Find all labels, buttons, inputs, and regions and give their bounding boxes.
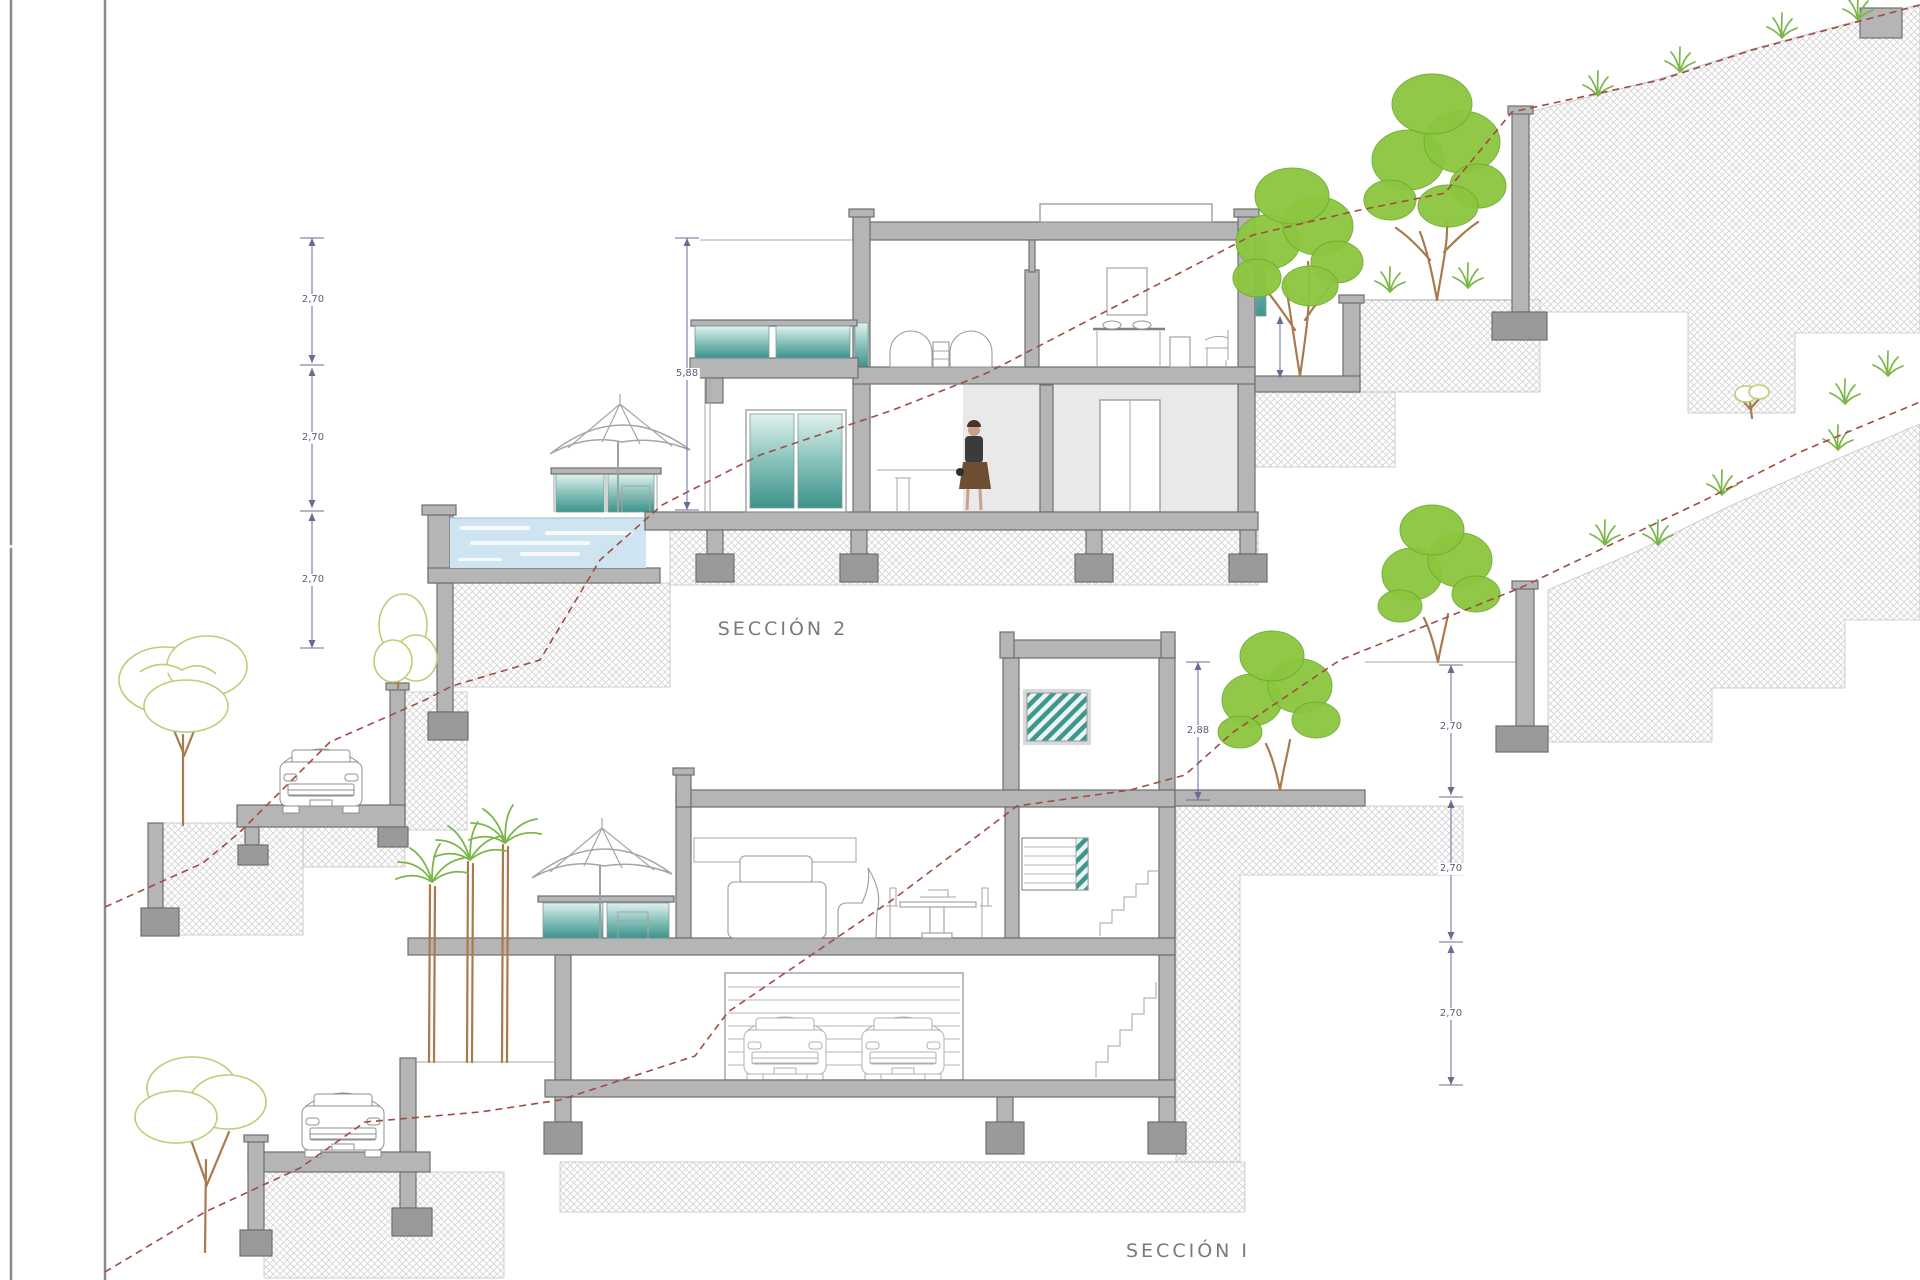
roof-slab-s1 — [676, 790, 1175, 807]
dim-left-3: 2,70 — [300, 574, 326, 586]
kitchen-hints — [877, 470, 962, 512]
skylight-curb — [1040, 204, 1212, 222]
pool — [0, 505, 660, 583]
vent-window — [1027, 693, 1087, 741]
sofa-back — [740, 856, 812, 884]
roof-slab — [853, 222, 1255, 240]
mid-floor-slab — [853, 367, 1255, 384]
garage-floor-slab — [545, 1080, 1175, 1097]
dining-table — [900, 902, 976, 907]
umbrella-s1 — [532, 818, 672, 878]
dim-total-height: 5,88 — [674, 368, 700, 380]
sheet-border — [11, 0, 105, 1280]
interior-stairs — [1096, 871, 1158, 1078]
partition-lower — [1040, 385, 1053, 512]
ground-slab — [645, 512, 1258, 530]
section-drawing-svg — [0, 0, 1920, 1280]
armchair — [838, 868, 879, 938]
terrace-s1 — [532, 818, 674, 938]
bathroom-furniture — [1093, 268, 1228, 367]
tree-terrace-r2 — [1378, 505, 1500, 662]
terrace-windbreak — [551, 468, 661, 512]
balcony-glass — [695, 326, 769, 358]
car-s1 — [302, 1093, 384, 1157]
building-s2 — [645, 204, 1267, 582]
dim-right-1: 2,70 — [1438, 721, 1464, 733]
tree-terrace-r1 — [1218, 631, 1340, 790]
dim-right-2: 2,70 — [1438, 863, 1464, 875]
dim-left-1: 2,70 — [300, 294, 326, 306]
chair — [1205, 330, 1228, 367]
dim-left-2: 2,70 — [300, 432, 326, 444]
balcony-slab — [690, 358, 858, 378]
building-s1 — [408, 632, 1186, 1154]
bedroom-furniture — [890, 331, 992, 367]
tree-sketch-s1 — [135, 1057, 266, 1252]
car-s2 — [280, 749, 362, 813]
sofa — [728, 882, 826, 938]
section-2-label: SECCIÓN 2 — [718, 618, 849, 640]
tower-roof — [1003, 640, 1175, 658]
dim-tower-height: 2,88 — [1185, 725, 1211, 737]
living-room-furniture — [728, 856, 992, 938]
garage-car-2 — [862, 1017, 944, 1081]
tree-sketch-left — [119, 636, 247, 825]
floor-slab-s1 — [408, 938, 1175, 955]
garage-car-1 — [744, 1017, 826, 1081]
foundation-footings-s1 — [544, 1097, 1186, 1154]
drawing-sheet: SECCIÓN 2 SECCIÓN I 2,70 2,70 2,70 5,88 … — [0, 0, 1920, 1280]
bush-on-wall — [374, 594, 437, 688]
tree-terrace-2 — [1364, 74, 1506, 300]
stool — [1170, 337, 1190, 367]
dim-right-3: 2,70 — [1438, 1008, 1464, 1020]
section-1-label: SECCIÓN I — [1126, 1240, 1250, 1262]
